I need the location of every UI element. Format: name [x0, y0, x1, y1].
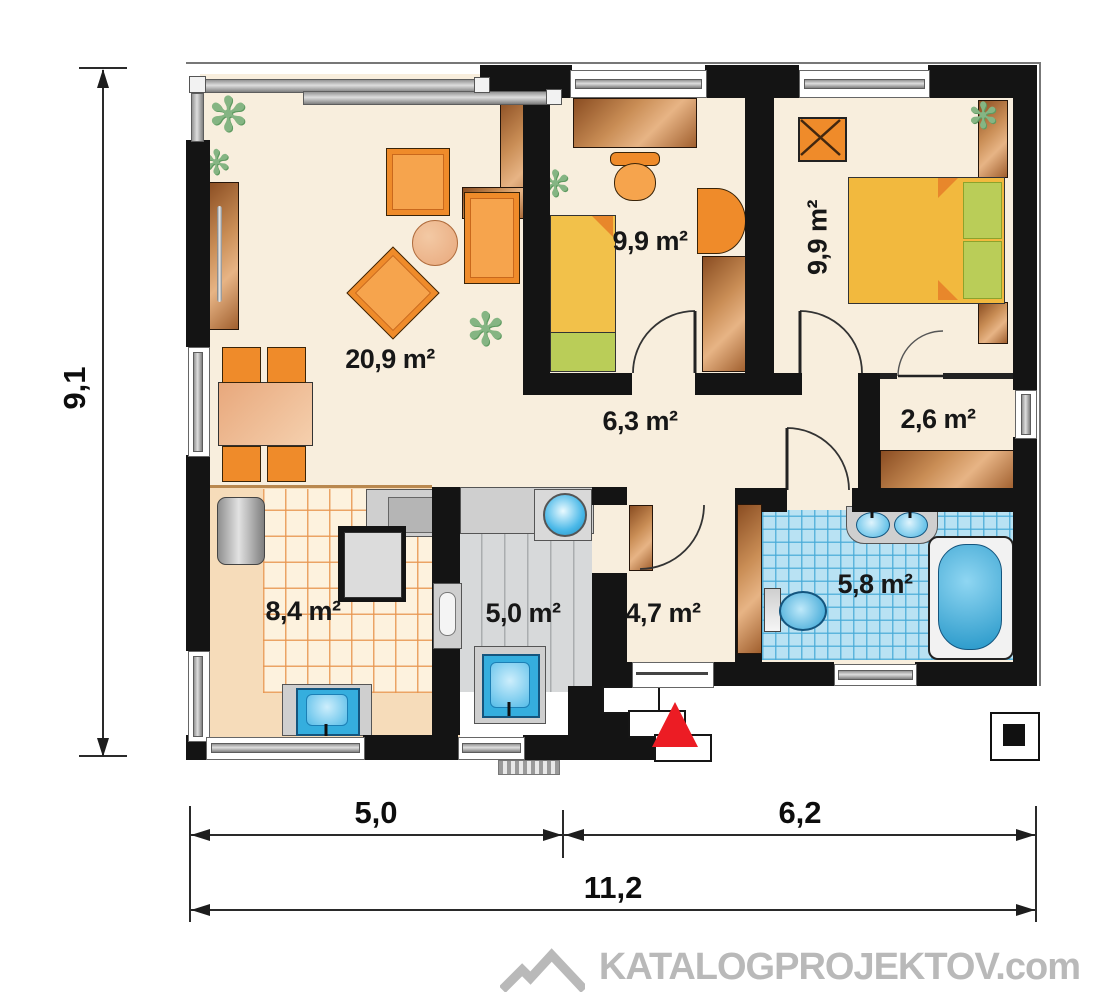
fridge — [217, 497, 265, 565]
child-desk — [573, 98, 697, 148]
bedside-table — [798, 117, 847, 162]
room-label-utility: 5,0 m² — [468, 598, 578, 629]
wall-bathroom-top-2 — [852, 488, 1013, 512]
wall-living-child — [523, 93, 550, 377]
room-label-kitchen: 8,4 m² — [248, 596, 358, 627]
dim-arrow-down — [97, 738, 109, 757]
room-label-child: 9,9 m² — [595, 226, 705, 257]
dining-chair-3 — [222, 446, 261, 482]
dim-line-upper — [190, 834, 1036, 836]
dim-label-height: 9,1 — [57, 338, 93, 438]
plant-icon: ✻ — [466, 306, 505, 352]
wall-utility-entry-lower — [592, 573, 627, 690]
corridor-cabinet — [737, 504, 762, 654]
glass-bar1-end — [474, 77, 490, 93]
wall-step-1 — [568, 686, 602, 760]
watermark: KATALOGPROJEKTOV.com — [500, 938, 1080, 996]
wall-bottom-right-2 — [712, 662, 834, 686]
wall-right-lower — [1013, 437, 1037, 686]
front-door-leaf — [636, 672, 708, 675]
dim-arrow — [191, 904, 210, 916]
coffee-table — [412, 220, 458, 266]
sideboard-handle — [217, 206, 222, 302]
wall-wardrobe-partition-2 — [943, 373, 1013, 379]
bed-pillow-1 — [963, 182, 1002, 239]
desk-chair-seat — [614, 163, 656, 201]
room-label-entry: 4,7 m² — [608, 598, 718, 629]
bed-fold-bottom — [938, 280, 958, 300]
dim-label-total-width: 11,2 — [553, 870, 673, 906]
window-utility-bottom-bar — [462, 743, 521, 753]
dim-vertical-line — [102, 70, 104, 757]
dining-table — [218, 382, 313, 446]
glass-corner-post — [189, 76, 206, 93]
stove — [344, 532, 402, 598]
child-wardrobe — [702, 256, 747, 372]
wall-right-upper — [1013, 65, 1037, 390]
room-label-bathroom: 5,8 m² — [820, 569, 930, 600]
kitchen-living-boundary — [210, 485, 432, 488]
window-child-top-bar — [575, 79, 702, 89]
glass-bar2-end — [546, 89, 562, 105]
window-kitchen-bottom-bar — [211, 743, 360, 753]
wall-child-bedroom — [745, 93, 774, 377]
utility-sink-basin — [490, 662, 530, 708]
bathtub-basin — [938, 544, 1002, 650]
room-label-wardrobe: 2,6 m² — [883, 404, 993, 435]
dim-arrow — [565, 829, 584, 841]
room-label-bedroom: 9,9 m² — [803, 188, 834, 288]
wall-hall-2 — [695, 373, 802, 395]
window-wardrobe-right-bar — [1021, 394, 1031, 435]
roof-edge-top — [186, 62, 1040, 64]
utility-door-leaf — [629, 505, 653, 571]
dim-arrow — [1016, 829, 1035, 841]
wall-wardrobe-partition-1 — [880, 373, 897, 379]
room-label-living: 20,9 m² — [335, 344, 445, 375]
porch-pillar-core — [1003, 724, 1025, 746]
dining-chair-4 — [267, 446, 306, 482]
watermark-roof-icon — [500, 942, 585, 992]
window-kitchen-left-bar — [193, 656, 203, 737]
glass-wall-left — [191, 93, 204, 142]
wall-hall-1 — [523, 373, 632, 395]
roof-edge-right — [1039, 62, 1041, 686]
dim-line-lower — [190, 909, 1036, 911]
washing-machine-drum — [543, 493, 587, 537]
front-door-mat — [498, 760, 560, 775]
armchair-right — [464, 192, 520, 284]
water-heater-front — [439, 592, 456, 636]
dim-arrow-up — [97, 69, 109, 88]
dim-label-left-width: 5,0 — [326, 795, 426, 831]
wall-utility-entry-upper — [592, 487, 627, 505]
bed-fold-top — [938, 178, 958, 198]
wall-left-mid — [186, 455, 210, 651]
window-living-left-bar — [193, 352, 203, 452]
front-door — [632, 662, 714, 688]
wall-step-3 — [624, 736, 654, 760]
child-bed-foot — [550, 332, 616, 372]
bed-pillow-2 — [963, 241, 1002, 299]
floor-plan: ✻ ✻ ✻ ✻ ✻ — [0, 0, 1103, 1000]
room-label-hallway: 6,3 m² — [585, 406, 695, 437]
bathroom-sink-1 — [856, 512, 890, 538]
window-bedroom-top-bar — [804, 79, 925, 89]
bathroom-sink-2 — [894, 512, 928, 538]
dining-chair-1 — [222, 347, 261, 383]
window-bathroom-bottom-bar — [838, 670, 913, 680]
plant-icon: ✻ — [208, 92, 248, 140]
dim-arrow — [1016, 904, 1035, 916]
entrance-marker — [652, 702, 698, 747]
glass-wall-bar-2 — [303, 91, 555, 105]
wall-bottom-left-2 — [363, 735, 458, 760]
kitchen-sink-basin — [306, 694, 348, 726]
wall-bathroom-top-1 — [760, 488, 787, 512]
armchair-top — [386, 148, 450, 216]
wall-bottom-left-3 — [523, 735, 572, 760]
wall-bottom-right-3 — [915, 662, 1013, 686]
wardrobe-shelf — [880, 450, 1015, 490]
dim-arrow — [191, 829, 210, 841]
dining-chair-2 — [267, 347, 306, 383]
dim-arrow — [543, 829, 562, 841]
wall-left-upper — [186, 140, 210, 347]
dim-label-right-width: 6,2 — [750, 795, 850, 831]
watermark-text: KATALOGPROJEKTOV.com — [599, 946, 1080, 989]
bedroom-closet-lower — [978, 302, 1008, 344]
sideboard — [207, 182, 239, 330]
dim-tick-right — [1035, 806, 1037, 922]
plant-icon: ✻ — [968, 98, 998, 134]
